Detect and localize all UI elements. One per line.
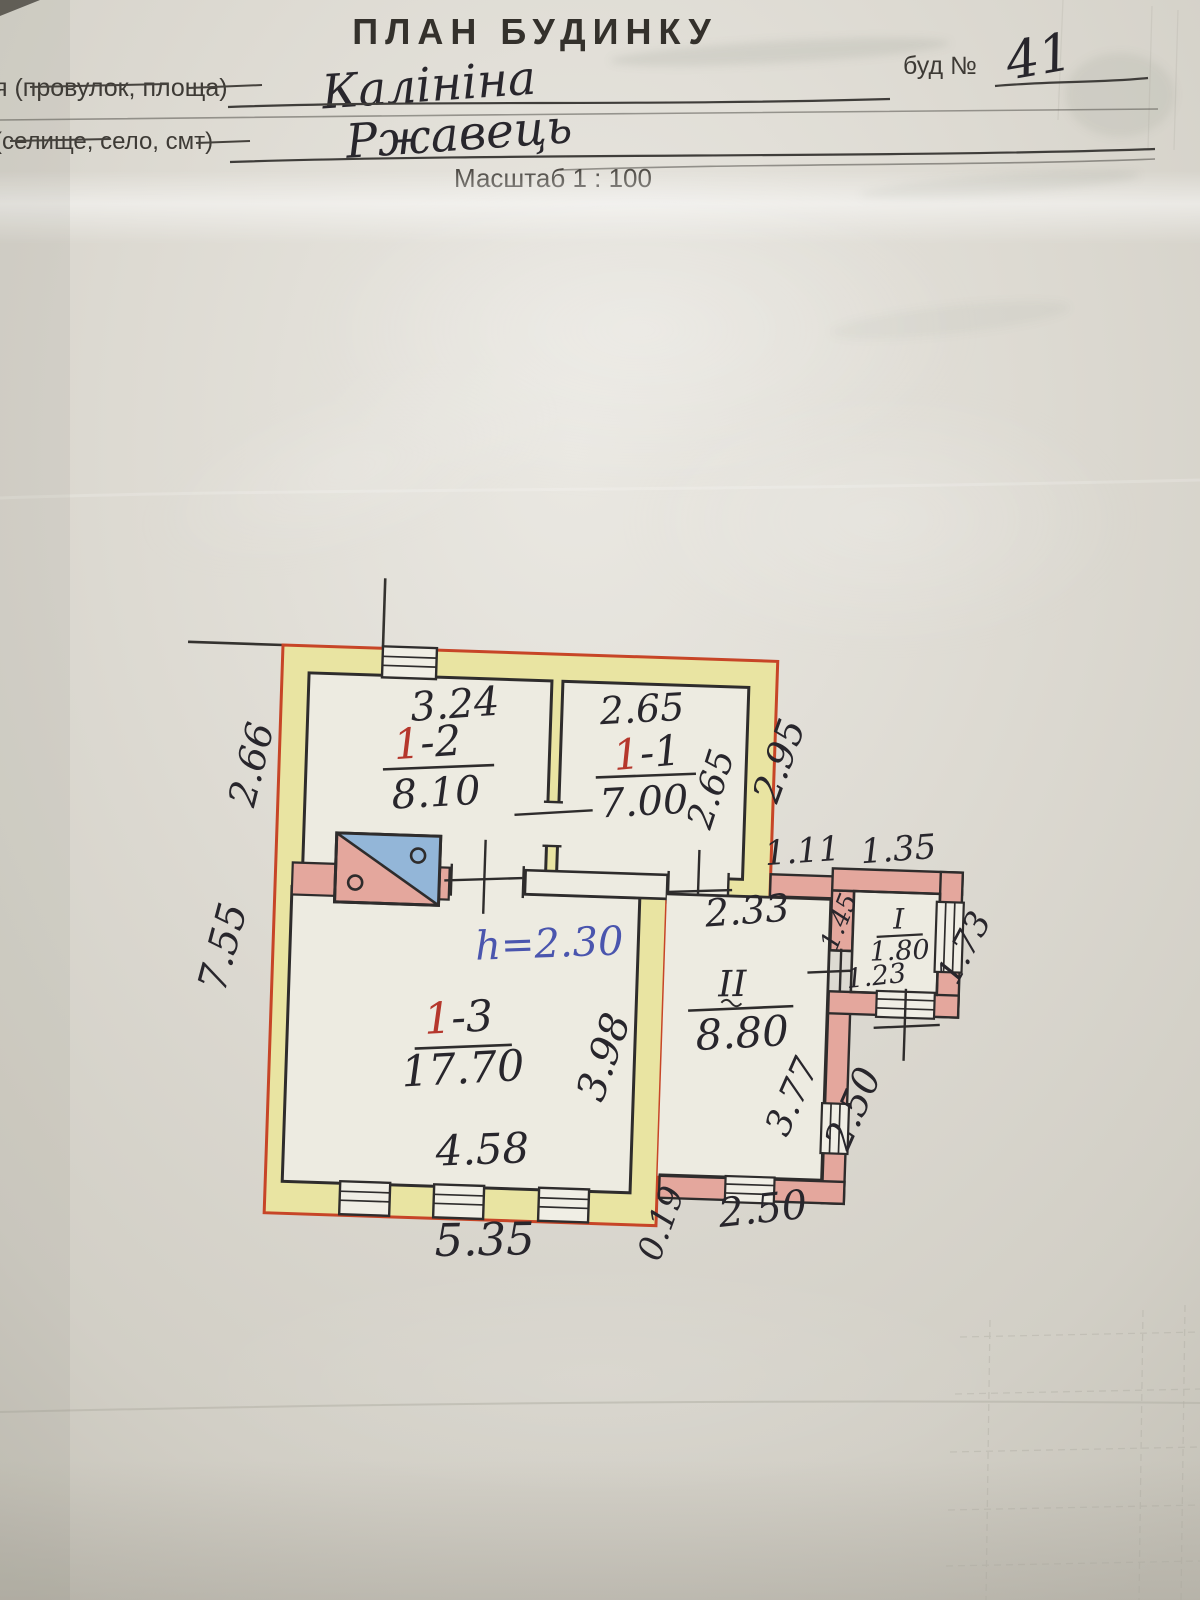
room12-number-red: 1 <box>392 718 422 769</box>
dim-roomII-out-bottom: 2.50 <box>715 1182 809 1237</box>
dim-room13-width: 4.58 <box>434 1123 530 1175</box>
ceiling-height-note: h=2.30 <box>474 918 624 969</box>
window-top-room-1-2 <box>382 646 437 679</box>
plan-canvas: ПЛАН БУДИНКУ я (провулок, площа) Калінін… <box>0 0 1200 1600</box>
room12-area: 8.10 <box>390 768 481 819</box>
room11-area: 7.00 <box>598 777 689 828</box>
dim-roomI-width: 1.23 <box>845 958 908 995</box>
roomI-number: I <box>892 902 906 935</box>
room13-number-red: 1 <box>423 994 453 1045</box>
left-edge-shadow <box>0 0 70 1600</box>
room11-number: 1-1 <box>611 725 683 780</box>
room13-number: 1-3 <box>423 991 495 1045</box>
dim-roomII-width: 2.33 <box>702 886 791 936</box>
wall-room13-top <box>525 870 668 899</box>
room13-area: 17.70 <box>400 1041 526 1098</box>
house-plan-document-photo: ПЛАН БУДИНКУ я (провулок, площа) Калінін… <box>0 0 1200 1600</box>
dim-annex-top: 1.11 <box>763 829 841 874</box>
room12-number: 1-2 <box>392 716 463 770</box>
roomII-number: II <box>717 964 748 1006</box>
building-no-label: буд № <box>903 52 977 80</box>
stove-icon <box>335 833 441 905</box>
room11-number-rest: -1 <box>638 725 683 777</box>
dim-roomI-out-top: 1.35 <box>859 827 937 872</box>
document-title: ПЛАН БУДИНКУ <box>352 11 717 52</box>
room13-number-rest: -3 <box>450 991 495 1043</box>
room12-number-rest: -2 <box>419 716 463 768</box>
roomII-area: 8.80 <box>694 1006 790 1060</box>
dim-bottom-total: 5.35 <box>434 1212 535 1267</box>
door-opening-1-2-to-1-1 <box>541 802 565 846</box>
